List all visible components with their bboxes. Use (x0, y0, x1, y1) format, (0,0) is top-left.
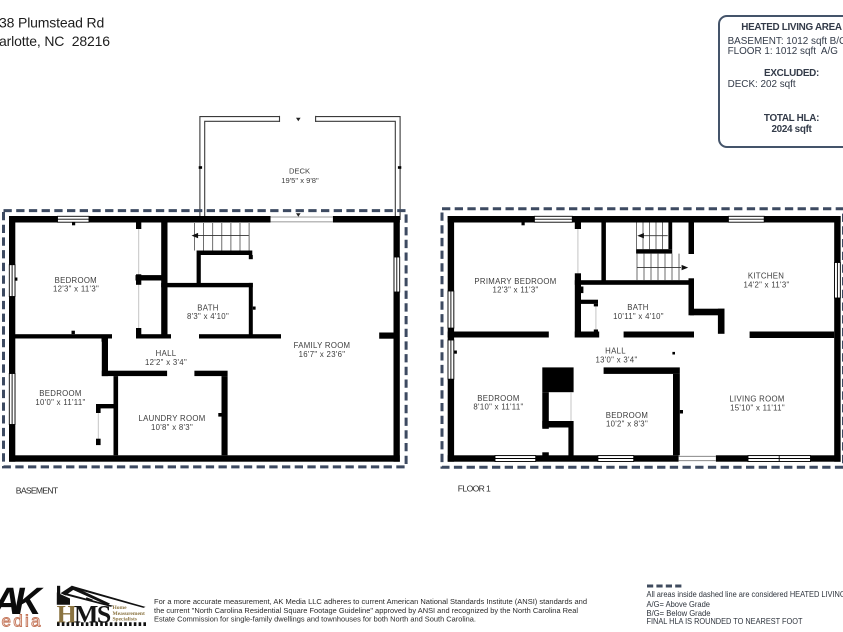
svg-text:BEDROOM: BEDROOM (477, 394, 519, 403)
svg-text:8'10" x 11'11": 8'10" x 11'11" (473, 403, 523, 412)
svg-text:PRIMARY BEDROOM: PRIMARY BEDROOM (474, 277, 556, 286)
svg-text:16'7" x 23'6": 16'7" x 23'6" (299, 350, 346, 359)
svg-text:BATH: BATH (197, 303, 218, 312)
svg-text:A/G= Above Grade: A/G= Above Grade (647, 600, 711, 609)
svg-text:FLOOR 1: FLOOR 1 (458, 484, 491, 494)
svg-text:BEDROOM: BEDROOM (55, 276, 97, 285)
svg-text:BEDROOM: BEDROOM (39, 389, 81, 398)
svg-text:All areas inside dashed line a: All areas inside dashed line are conside… (647, 590, 843, 599)
svg-text:12'3" x 11'3": 12'3" x 11'3" (492, 286, 538, 295)
svg-text:Specialists: Specialists (113, 617, 137, 623)
svg-text:FINAL HLA IS ROUNDED TO NEARES: FINAL HLA IS ROUNDED TO NEAREST FOOT (647, 617, 803, 626)
svg-text:10'11" x 4'10": 10'11" x 4'10" (613, 312, 664, 321)
svg-text:LIVING ROOM: LIVING ROOM (729, 395, 784, 404)
svg-text:For a more accurate measuremen: For a more accurate measurement, AK Medi… (154, 599, 587, 606)
svg-text:Estate Commission for single-f: Estate Commission for single-family dwel… (154, 617, 476, 624)
svg-text:LAUNDRY ROOM: LAUNDRY ROOM (139, 414, 206, 423)
svg-text:BASEMENT: BASEMENT (16, 485, 59, 495)
svg-text:13'0" x 3'4": 13'0" x 3'4" (595, 356, 637, 365)
svg-text:19'5" x 9'8": 19'5" x 9'8" (281, 176, 319, 185)
svg-text:15'10" x 11'11": 15'10" x 11'11" (730, 403, 785, 412)
svg-text:38 Plumstead Rd: 38 Plumstead Rd (0, 15, 104, 31)
svg-text:the current "North Carolina Re: the current "North Carolina Residential … (154, 608, 578, 615)
svg-text:Charlotte, NC 28216: Charlotte, NC 28216 (0, 33, 110, 49)
svg-text:media: media (0, 611, 43, 630)
svg-text:14'2" x 11'3": 14'2" x 11'3" (743, 281, 789, 290)
svg-text:10'2" x 8'3": 10'2" x 8'3" (606, 420, 648, 429)
svg-text:12'3" x 11'3": 12'3" x 11'3" (53, 285, 99, 294)
svg-text:BEDROOM: BEDROOM (606, 411, 648, 420)
svg-text:KITCHEN: KITCHEN (748, 272, 784, 281)
svg-text:12'2" x 3'4": 12'2" x 3'4" (145, 358, 187, 367)
svg-text:DECK: DECK (289, 167, 310, 176)
svg-text:10'0" x 11'11": 10'0" x 11'11" (35, 398, 85, 407)
svg-text:HALL: HALL (156, 349, 177, 358)
svg-text:BATH: BATH (627, 303, 648, 312)
svg-text:8'3" x 4'10": 8'3" x 4'10" (187, 312, 229, 321)
svg-text:HALL: HALL (605, 347, 626, 356)
svg-text:10'8" x 8'3": 10'8" x 8'3" (151, 423, 193, 432)
